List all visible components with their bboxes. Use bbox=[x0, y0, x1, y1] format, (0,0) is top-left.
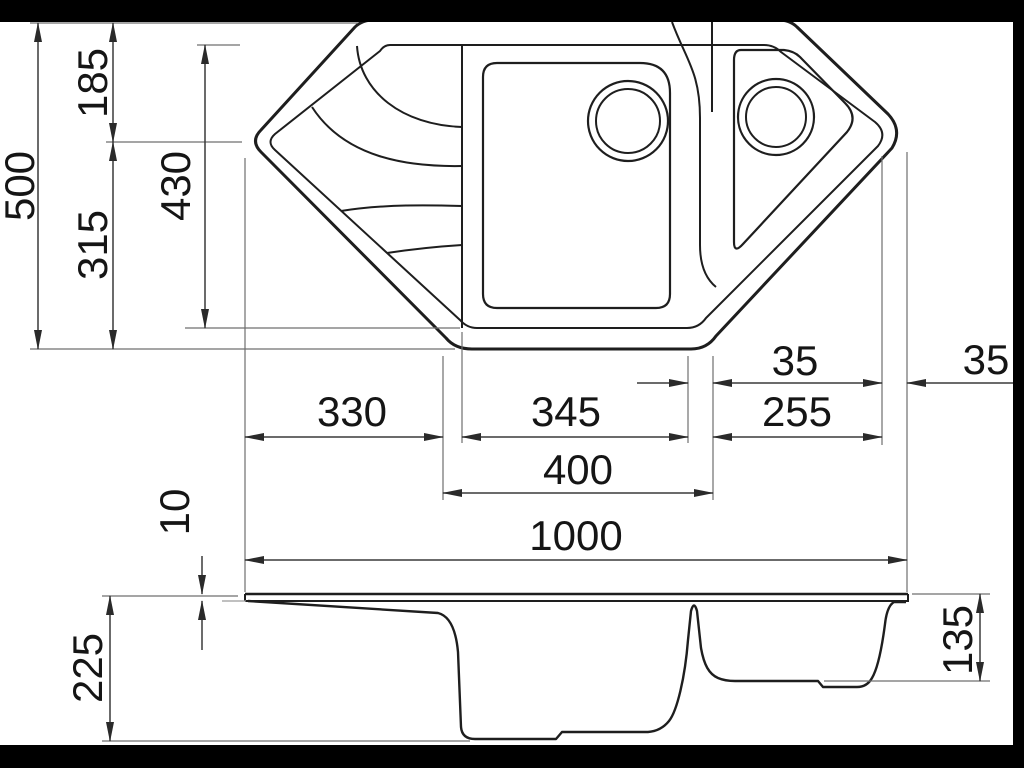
dim-label-35-inner: 35 bbox=[772, 337, 819, 384]
dim-label-500: 500 bbox=[0, 151, 43, 221]
dim-label-430: 430 bbox=[152, 151, 199, 221]
dim-label-330: 330 bbox=[317, 388, 387, 435]
dim-label-135: 135 bbox=[934, 605, 981, 675]
letterbox-top bbox=[0, 0, 1024, 22]
dim-label-35-outer: 35 bbox=[963, 336, 1010, 383]
dim-label-1000: 1000 bbox=[529, 512, 622, 559]
dim-label-315: 315 bbox=[69, 210, 116, 280]
letterbox-bottom bbox=[0, 745, 1024, 768]
dim-label-225: 225 bbox=[64, 633, 111, 703]
dim-label-345: 345 bbox=[531, 388, 601, 435]
dim-label-185: 185 bbox=[69, 48, 116, 118]
dim-label-400: 400 bbox=[543, 446, 613, 493]
dim-label-10: 10 bbox=[151, 489, 198, 536]
paper-background bbox=[0, 0, 1024, 768]
sink-technical-drawing: 500 185 315 430 330 345 255 35 35 400 10… bbox=[0, 0, 1024, 768]
dim-label-255: 255 bbox=[762, 388, 832, 435]
drawing-canvas: 500 185 315 430 330 345 255 35 35 400 10… bbox=[0, 0, 1024, 768]
letterbox-right bbox=[1013, 22, 1024, 745]
